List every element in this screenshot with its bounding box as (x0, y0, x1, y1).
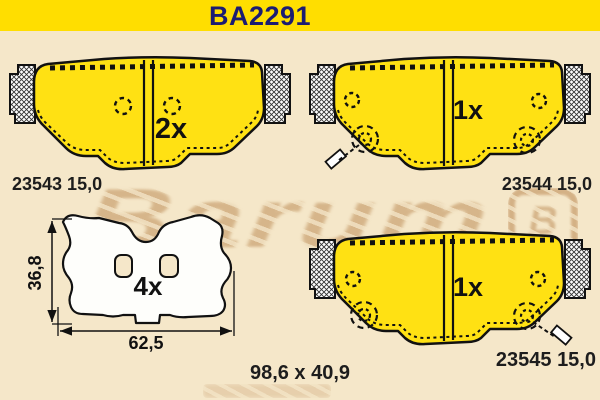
sensor-clip-tab (551, 326, 571, 345)
brake-pad-drawing-bottom-right: 1x (304, 227, 596, 351)
shim-outline (63, 215, 231, 323)
shim-dimension-drawing: 4x 36,8 62,5 (27, 207, 245, 355)
part-number-top-left: 23543 15,0 (12, 174, 102, 195)
overall-size-label: 98,6 x 40,9 (225, 362, 375, 385)
brake-pad-drawing-top-right: 1x (304, 52, 596, 176)
sensor-clip-tab (326, 150, 346, 169)
quantity-label: 1x (453, 95, 483, 125)
ear-hatch-left (310, 240, 335, 298)
shim-hole-right (160, 255, 178, 277)
part-number-bottom-right: 23545 15,0 (428, 349, 596, 372)
dimension-height-label: 36,8 (27, 255, 45, 290)
ear-hatch-right (265, 65, 290, 123)
brake-pad-drawing-top-left: 2x (4, 52, 296, 176)
watermark-fragment (203, 384, 331, 398)
ear-hatch-right (565, 65, 590, 123)
part-number-top-right: 23544 15,0 (430, 174, 592, 195)
ear-hatch-right (565, 240, 590, 298)
header-bar: BA2291 (0, 0, 600, 31)
dimension-width-label: 62,5 (128, 333, 163, 353)
quantity-label: 1x (453, 272, 483, 302)
shim-hole-left (115, 255, 132, 277)
ear-hatch-left (310, 65, 335, 123)
ear-hatch-left (10, 65, 35, 123)
pad-backplate (34, 57, 264, 169)
catalog-page: BA2291 Barum B 2x 23543 15,0 (0, 0, 600, 400)
quantity-label: 4x (134, 271, 163, 301)
page-title: BA2291 (0, 1, 520, 32)
pad-backplate (334, 57, 564, 169)
quantity-label: 2x (155, 113, 187, 145)
